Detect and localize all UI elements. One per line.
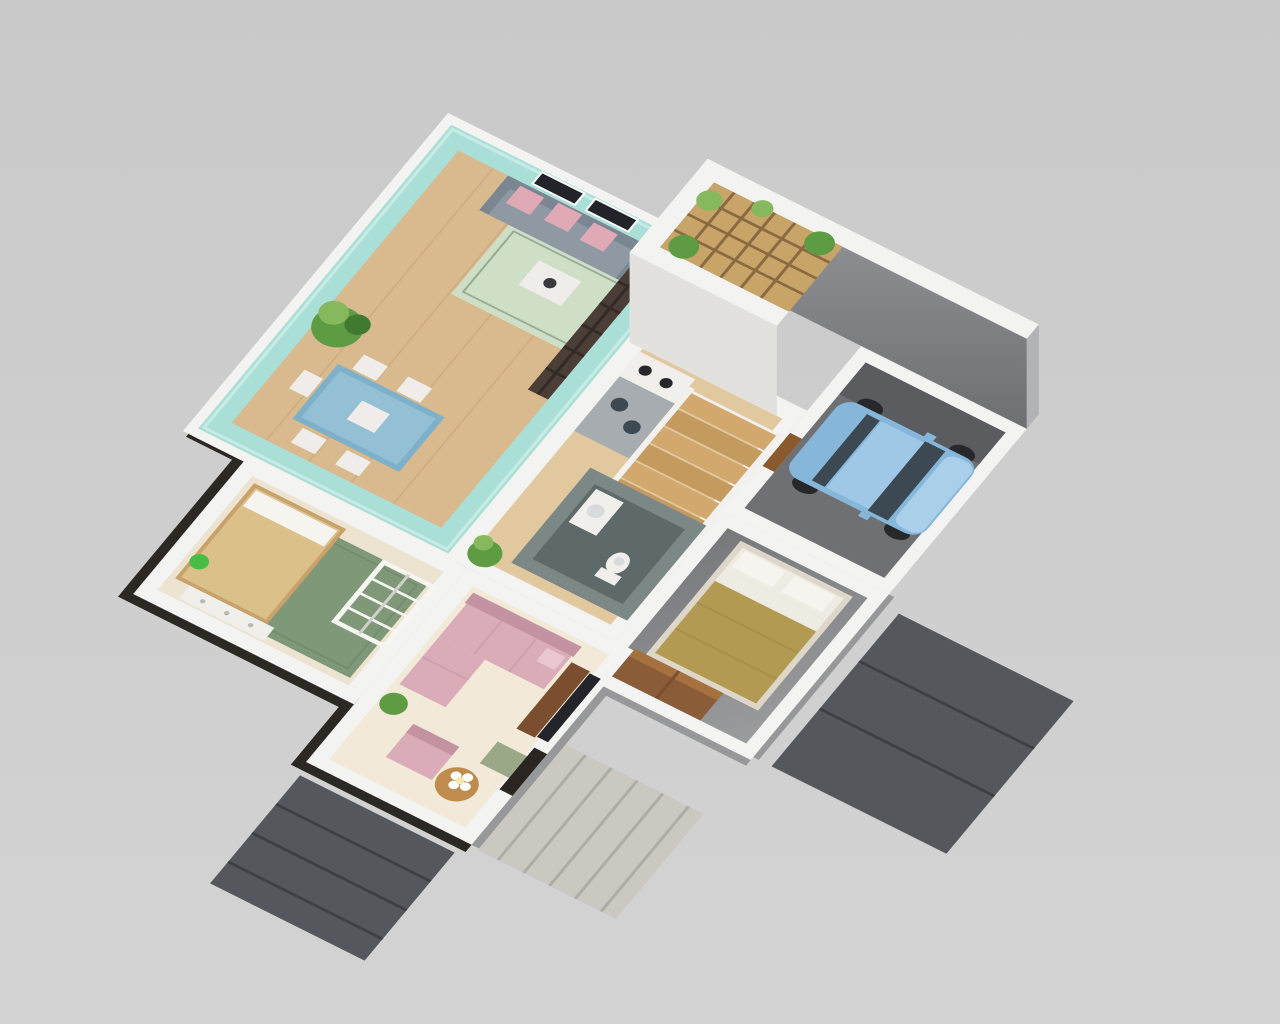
floor-plan-render bbox=[0, 0, 1280, 1024]
tall-wall-end-face bbox=[1027, 324, 1039, 428]
floor-plan-svg bbox=[0, 0, 1280, 1024]
